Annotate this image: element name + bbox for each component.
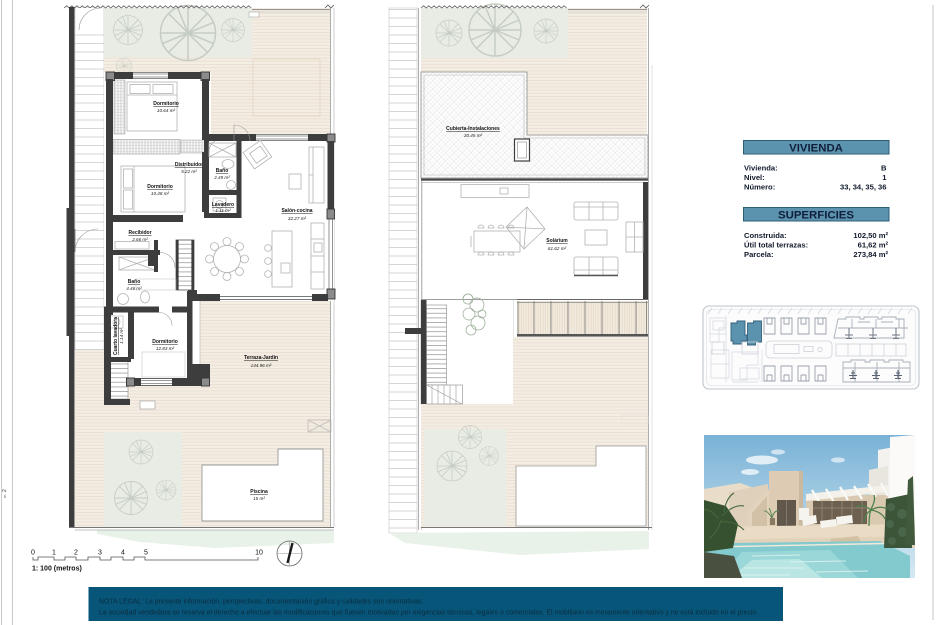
svg-text:2.66 m²: 2.66 m²: [131, 237, 148, 242]
svg-text:4: 4: [121, 550, 125, 557]
svg-text:15 m²: 15 m²: [253, 496, 265, 501]
svg-text:5: 5: [144, 550, 148, 557]
svg-text:Parcela:: Parcela:: [744, 250, 774, 259]
svg-text:Dormitorio: Dormitorio: [147, 184, 173, 190]
svg-text:Baño: Baño: [216, 168, 229, 174]
svg-text:Número:: Número:: [744, 183, 775, 192]
svg-text:B: B: [881, 164, 887, 173]
svg-text:Útil total terrazas:: Útil total terrazas:: [744, 241, 808, 250]
svg-text:VIVIENDA: VIVIENDA: [789, 143, 843, 155]
svg-text:1: 100 (metros): 1: 100 (metros): [32, 566, 82, 573]
svg-text:Cubierta-Instalaciones: Cubierta-Instalaciones: [446, 126, 500, 132]
svg-text:2: 2: [74, 550, 78, 557]
svg-text:10: 10: [255, 550, 263, 557]
svg-text:1.14 m²: 1.14 m²: [119, 328, 124, 344]
svg-text:Dormitorio: Dormitorio: [152, 339, 178, 345]
svg-text:1.11 m²: 1.11 m²: [215, 208, 231, 213]
svg-text:5.22 m²: 5.22 m²: [181, 169, 197, 174]
svg-text:2: 2: [2, 489, 8, 492]
svg-text:61,62 m²: 61,62 m²: [858, 241, 889, 250]
svg-text:Terraza-Jardín: Terraza-Jardín: [244, 355, 278, 361]
svg-text:SUPERFICIES: SUPERFICIES: [778, 210, 854, 222]
svg-text:61.62 m²: 61.62 m²: [548, 246, 567, 251]
svg-text:Construida:: Construida:: [744, 231, 787, 240]
svg-text:144.96 m²: 144.96 m²: [251, 363, 272, 368]
svg-text:Distribuidor: Distribuidor: [175, 162, 203, 168]
svg-text:30.45 m²: 30.45 m²: [464, 133, 483, 138]
svg-text:0: 0: [31, 550, 35, 557]
svg-text:2.49 m²: 2.49 m²: [213, 175, 230, 180]
svg-text:102,50 m²: 102,50 m²: [853, 231, 888, 240]
svg-text:33, 34, 35, 36: 33, 34, 35, 36: [840, 183, 886, 192]
svg-text:273,84 m²: 273,84 m²: [853, 250, 888, 259]
svg-text:La sociedad vendedora se reser: La sociedad vendedora se reserva el dere…: [99, 610, 758, 617]
svg-text:Solárium: Solárium: [546, 238, 568, 244]
svg-text:Dormitorio: Dormitorio: [153, 101, 179, 107]
svg-text:1: 1: [52, 550, 56, 557]
svg-text:32.27 m²: 32.27 m²: [288, 216, 307, 221]
svg-text:Vivienda:: Vivienda:: [744, 164, 778, 173]
svg-text:Baño: Baño: [128, 279, 141, 285]
svg-text:Recibidor: Recibidor: [128, 230, 151, 236]
svg-text:3: 3: [98, 550, 102, 557]
svg-text:NOTA LEGAL: La presente inform: NOTA LEGAL: La presente información, per…: [99, 599, 423, 606]
svg-text:Salón-cocina: Salón-cocina: [281, 208, 312, 214]
svg-text:Nivel:: Nivel:: [744, 173, 765, 182]
svg-text:12.83 m²: 12.83 m²: [156, 346, 175, 351]
svg-text:Piscina: Piscina: [250, 489, 268, 495]
svg-text:10.64 m²: 10.64 m²: [157, 108, 176, 113]
svg-text:10.48 m²: 10.48 m²: [151, 191, 170, 196]
